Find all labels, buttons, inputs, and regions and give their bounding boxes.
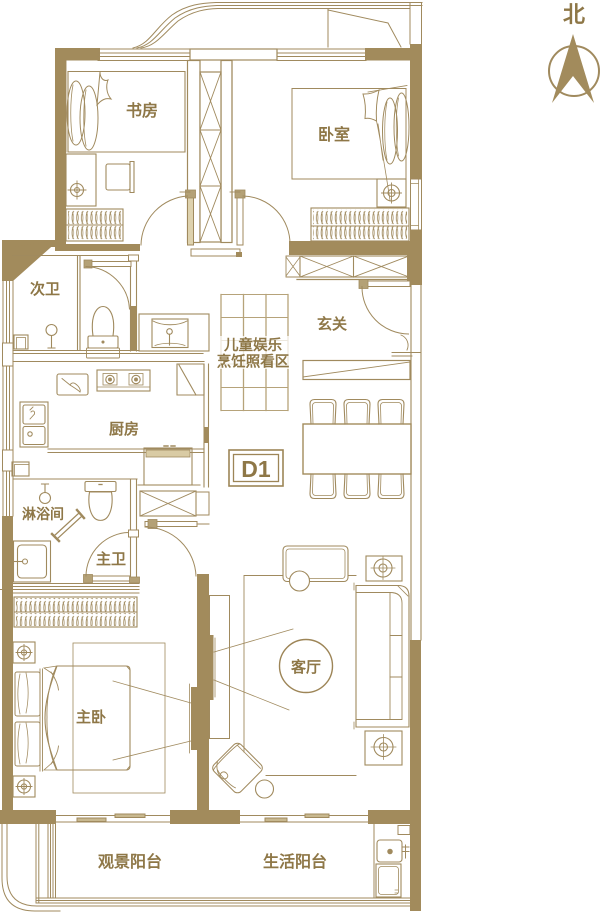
svg-text:D1: D1 bbox=[241, 456, 271, 482]
svg-text:主卧: 主卧 bbox=[76, 708, 106, 726]
svg-text:客厅: 客厅 bbox=[290, 658, 321, 676]
svg-text:生活阳台: 生活阳台 bbox=[263, 852, 327, 871]
svg-text:卧室: 卧室 bbox=[318, 125, 350, 144]
svg-text:北: 北 bbox=[563, 2, 585, 27]
svg-text:次卫: 次卫 bbox=[30, 280, 60, 298]
svg-text:玄关: 玄关 bbox=[317, 315, 347, 333]
svg-text:观景阳台: 观景阳台 bbox=[98, 852, 162, 871]
svg-text:烹饪照看区: 烹饪照看区 bbox=[217, 353, 290, 371]
svg-text:书房: 书房 bbox=[126, 101, 158, 120]
svg-text:儿童娱乐: 儿童娱乐 bbox=[223, 336, 282, 354]
svg-text:厨房: 厨房 bbox=[109, 420, 139, 438]
svg-text:主卫: 主卫 bbox=[96, 550, 126, 568]
svg-text:淋浴间: 淋浴间 bbox=[22, 506, 64, 522]
